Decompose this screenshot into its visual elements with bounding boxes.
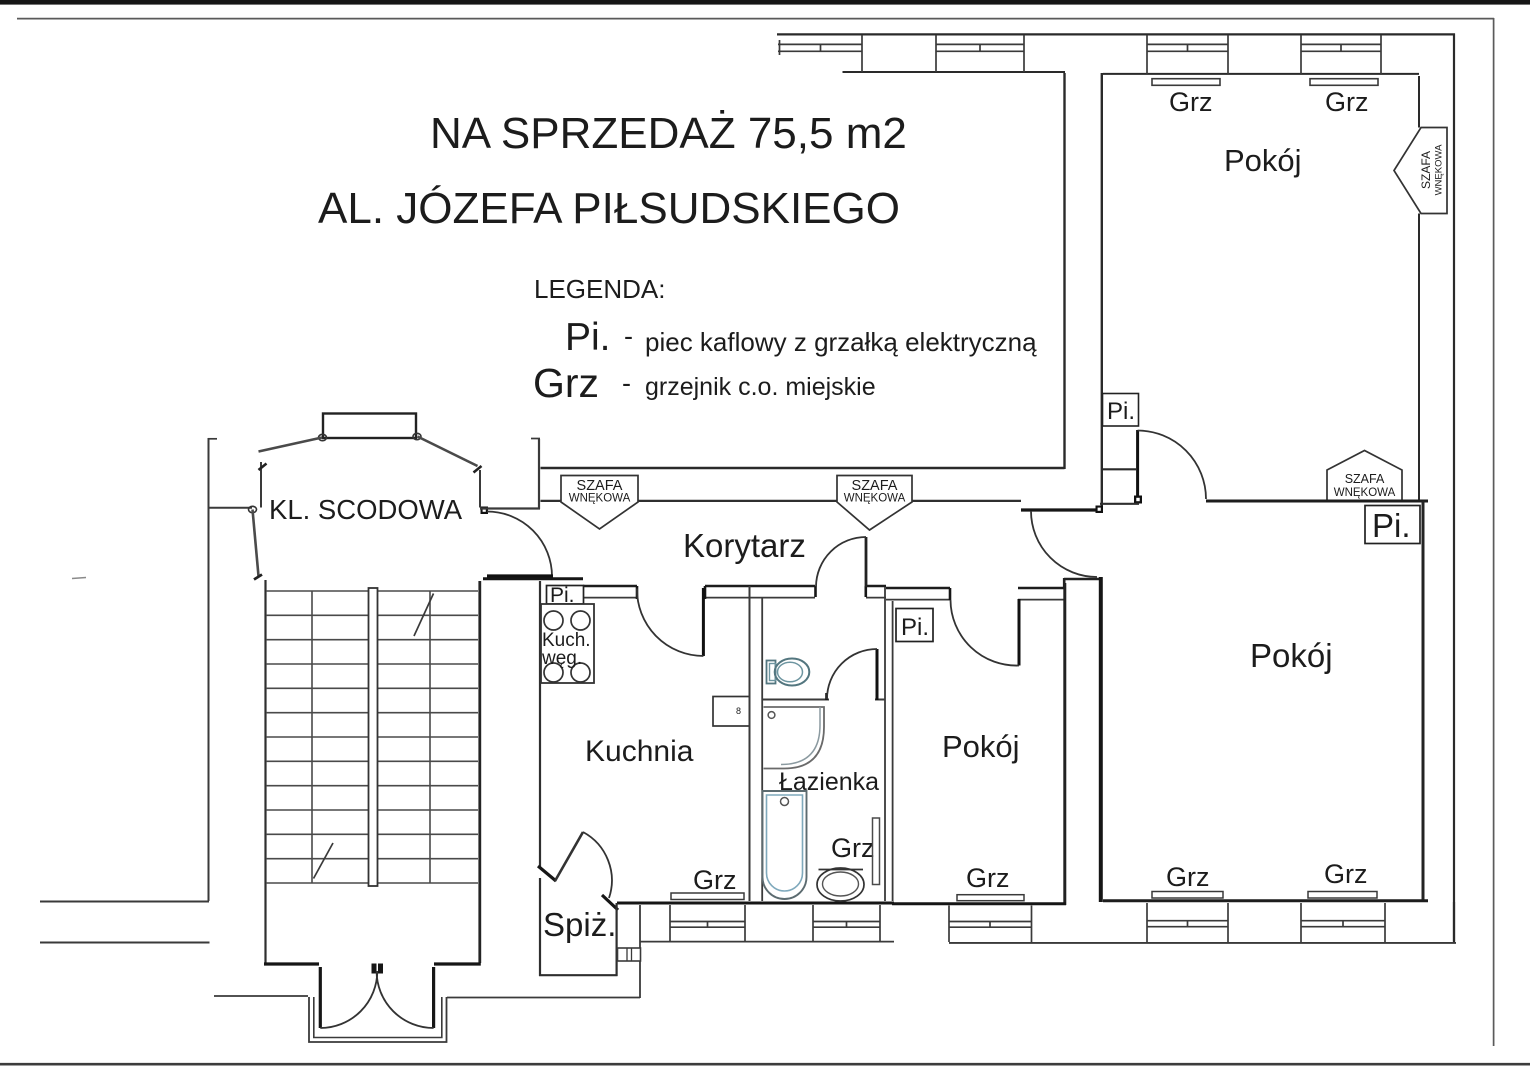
svg-text:Pi.: Pi. — [565, 316, 611, 359]
svg-text:8: 8 — [736, 706, 741, 716]
svg-text:WNĘKOWA: WNĘKOWA — [569, 493, 631, 505]
svg-text:-: - — [624, 321, 633, 351]
svg-text:LEGENDA:: LEGENDA: — [534, 274, 666, 304]
svg-text:grzejnik c.o. miejskie: grzejnik c.o. miejskie — [645, 373, 876, 401]
svg-text:węg.: węg. — [541, 648, 582, 669]
svg-text:-: - — [622, 368, 631, 398]
svg-text:Grz: Grz — [831, 833, 875, 863]
svg-text:SZAFA: SZAFA — [1345, 472, 1385, 486]
svg-text:Korytarz: Korytarz — [683, 527, 806, 564]
svg-text:Grz: Grz — [1166, 862, 1210, 892]
svg-text:NA SPRZEDAŻ 75,5 m2: NA SPRZEDAŻ 75,5 m2 — [430, 109, 907, 158]
svg-text:KL. SCODOWA: KL. SCODOWA — [269, 494, 463, 525]
svg-text:Pokój: Pokój — [1250, 637, 1333, 674]
svg-text:Grz: Grz — [533, 360, 599, 406]
svg-text:Grz: Grz — [1324, 859, 1368, 889]
svg-text:Kuchnia: Kuchnia — [585, 735, 694, 768]
svg-text:Pi.: Pi. — [1372, 507, 1411, 544]
svg-text:SZAFA: SZAFA — [1419, 151, 1433, 189]
svg-text:Grz: Grz — [1169, 87, 1213, 117]
svg-text:Pokój: Pokój — [942, 729, 1020, 764]
svg-text:AL. JÓZEFA PIŁSUDSKIEGO: AL. JÓZEFA PIŁSUDSKIEGO — [318, 184, 900, 233]
svg-text:WNĘKOWA: WNĘKOWA — [1434, 144, 1445, 196]
svg-text:Pokój: Pokój — [1224, 143, 1302, 178]
svg-text:Grz: Grz — [1325, 87, 1369, 117]
svg-text:Grz: Grz — [966, 863, 1010, 893]
svg-text:WNĘKOWA: WNĘKOWA — [1334, 487, 1396, 499]
svg-text:Spiż.: Spiż. — [543, 906, 616, 943]
svg-text:piec kaflowy z grzałką elektry: piec kaflowy z grzałką elektryczną — [645, 327, 1037, 357]
svg-text:Pi.: Pi. — [901, 614, 929, 641]
svg-text:Pi.: Pi. — [1107, 398, 1135, 425]
svg-text:WNĘKOWA: WNĘKOWA — [844, 493, 906, 505]
svg-text:Grz: Grz — [693, 865, 737, 895]
